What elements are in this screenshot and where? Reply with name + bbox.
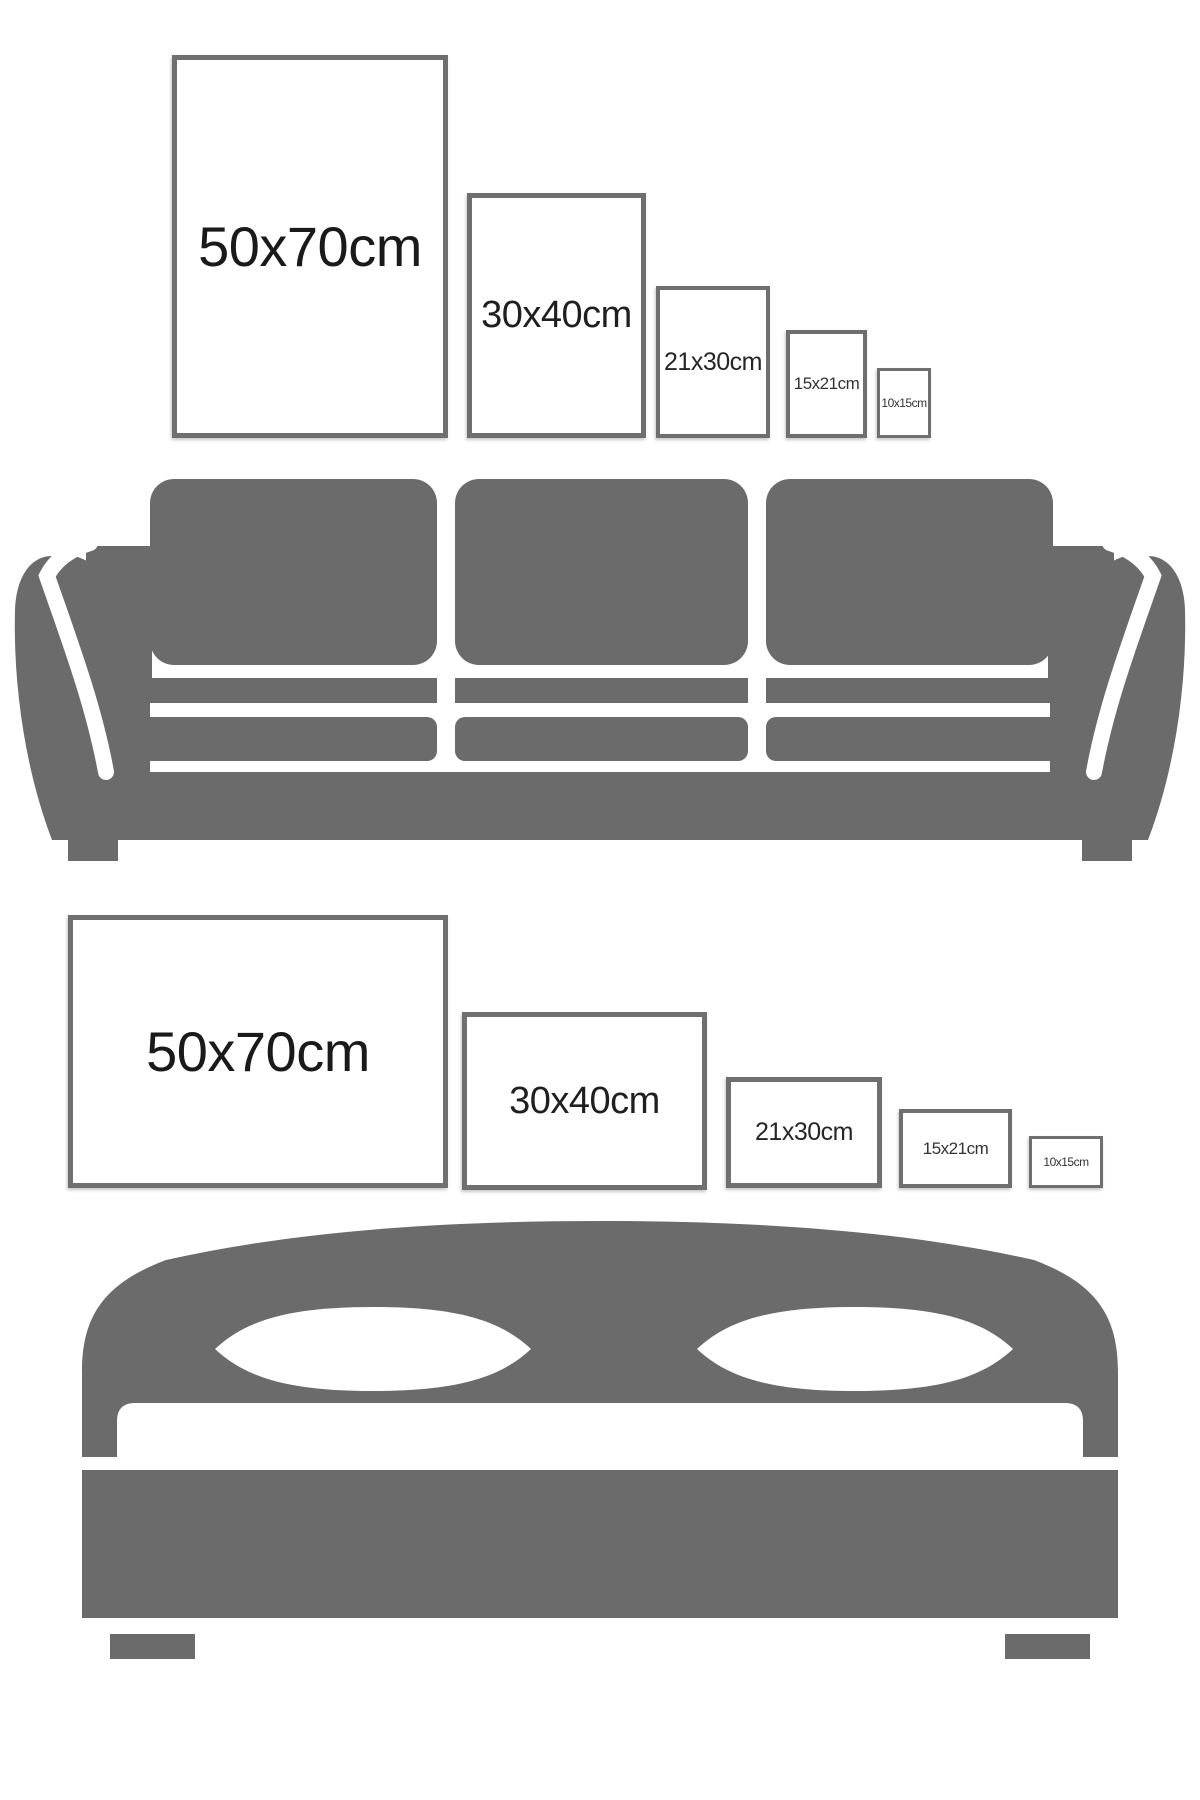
size-label: 30x40cm [509, 1080, 660, 1123]
size-frame-landscape-15x21: 15x21cm [899, 1109, 1012, 1188]
size-guide-diagram: 50x70cm 30x40cm 21x30cm 15x21cm 10x15cm [0, 0, 1200, 1800]
size-frame-landscape-21x30: 21x30cm [726, 1077, 882, 1188]
size-frame-landscape-30x40: 30x40cm [462, 1012, 707, 1190]
size-label: 15x21cm [794, 374, 859, 394]
size-frame-portrait-10x15: 10x15cm [877, 368, 931, 438]
size-label: 21x30cm [755, 1118, 853, 1147]
size-label: 30x40cm [481, 294, 632, 337]
size-label: 15x21cm [923, 1139, 988, 1159]
size-label: 50x70cm [146, 1019, 370, 1084]
bed-icon [0, 1215, 1200, 1675]
size-frame-portrait-50x70: 50x70cm [172, 55, 448, 438]
size-frame-portrait-15x21: 15x21cm [786, 330, 867, 438]
size-label: 10x15cm [881, 396, 926, 410]
size-frame-landscape-50x70: 50x70cm [68, 915, 448, 1188]
size-label: 50x70cm [198, 214, 422, 279]
sofa-icon [0, 460, 1200, 880]
size-frame-portrait-30x40: 30x40cm [467, 193, 646, 438]
size-frame-landscape-10x15: 10x15cm [1029, 1136, 1103, 1188]
size-label: 21x30cm [664, 348, 762, 377]
size-label: 10x15cm [1043, 1155, 1088, 1169]
size-frame-portrait-21x30: 21x30cm [656, 286, 770, 438]
